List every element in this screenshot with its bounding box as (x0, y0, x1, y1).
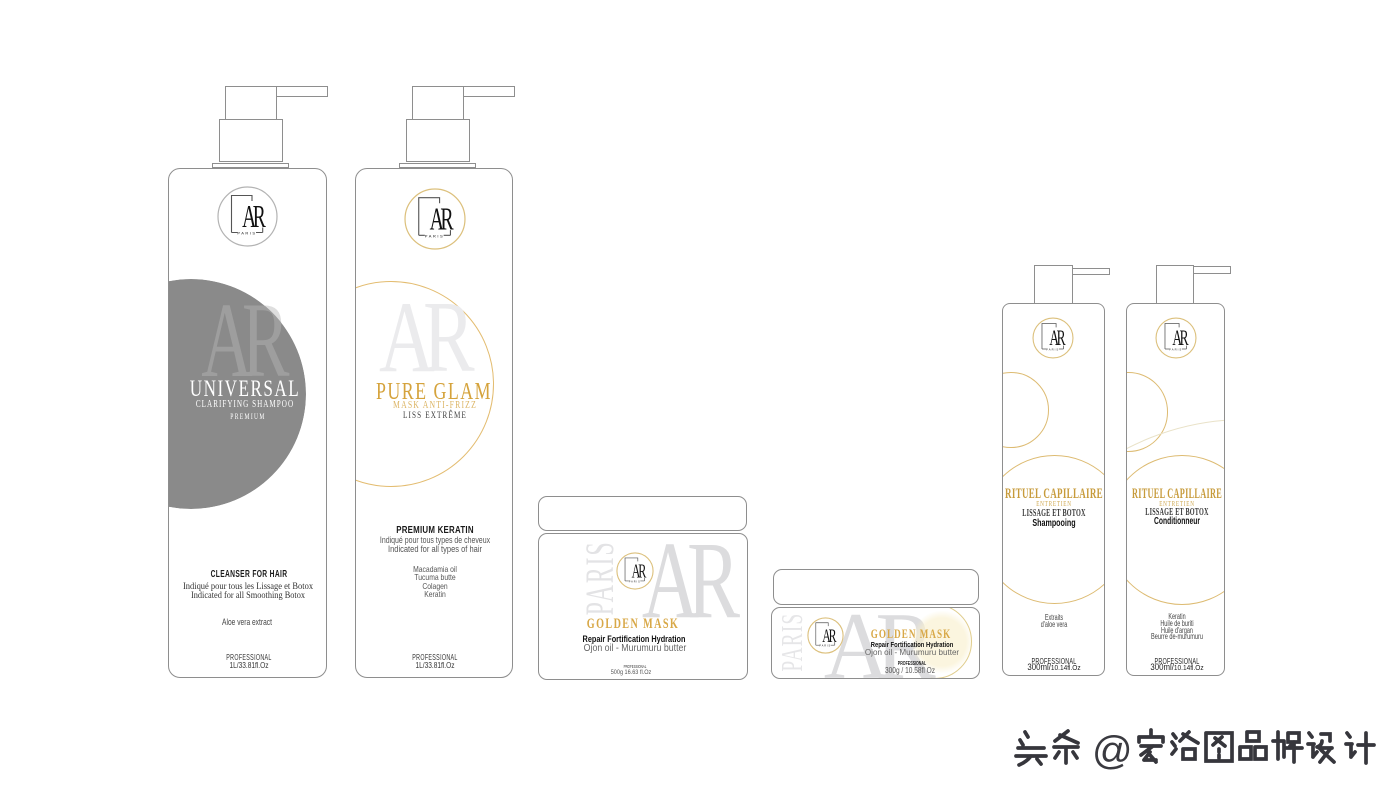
svg-text:@: @ (1092, 729, 1133, 773)
